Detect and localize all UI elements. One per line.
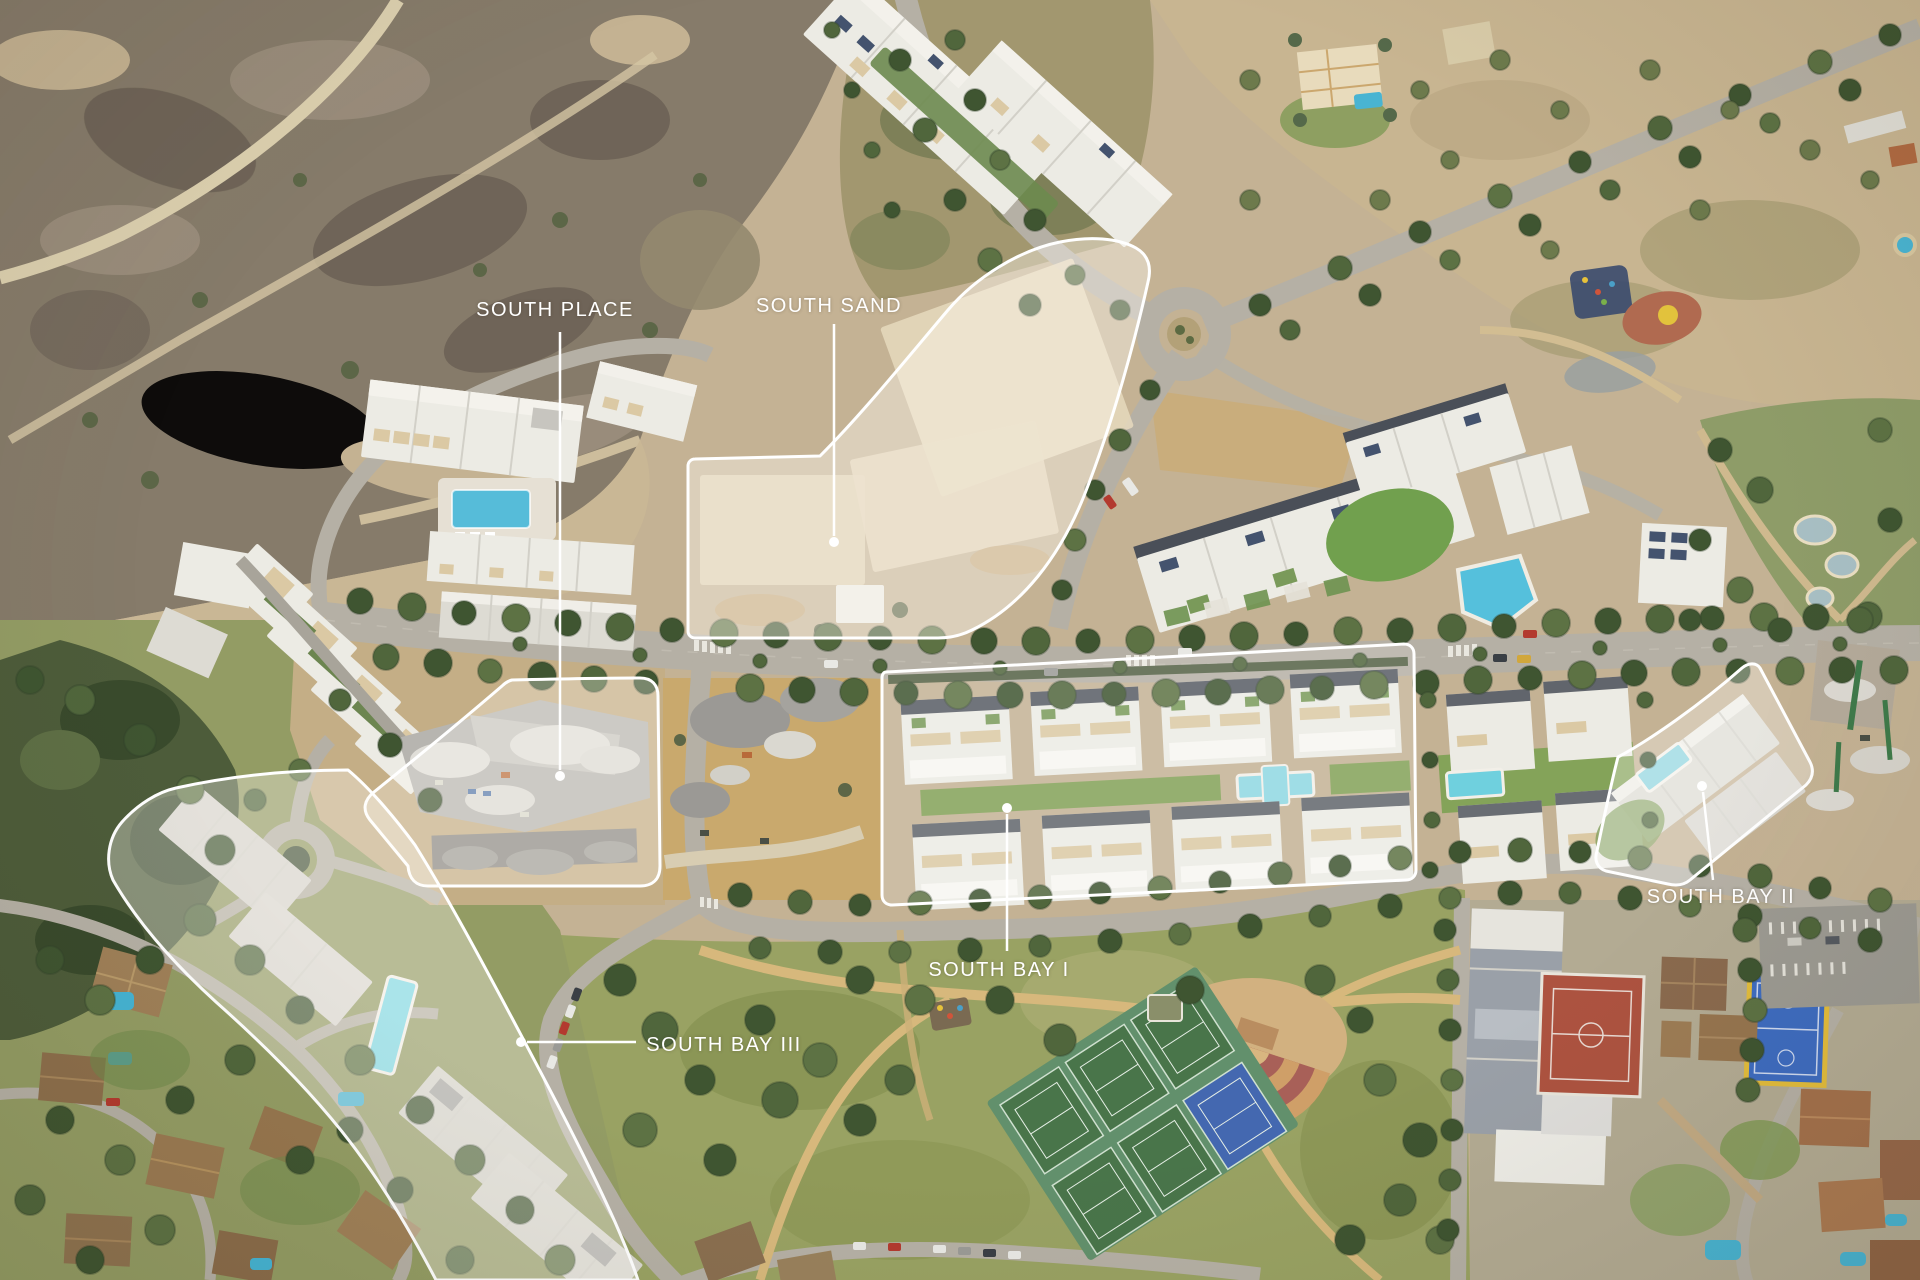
label-south-bay-iii: SOUTH BAY III	[646, 1032, 801, 1058]
label-south-place: SOUTH PLACE	[476, 297, 634, 323]
label-south-bay-ii: SOUTH BAY II	[1647, 884, 1795, 910]
aerial-site-view: SOUTH PLACE SOUTH SAND SOUTH BAY I SOUTH…	[0, 0, 1920, 1280]
parcel-south-bay-1	[882, 644, 1416, 905]
label-south-sand: SOUTH SAND	[756, 293, 902, 319]
label-south-bay-i: SOUTH BAY I	[928, 957, 1069, 983]
aerial-photo	[0, 0, 1920, 1280]
